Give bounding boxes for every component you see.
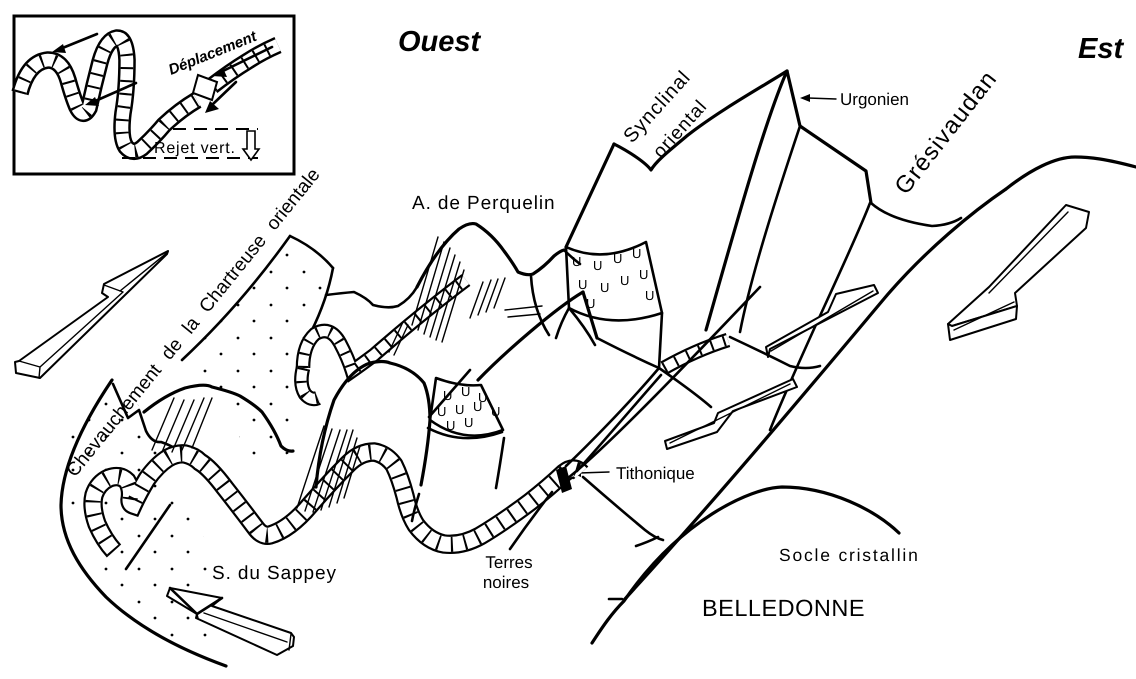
svg-text:noires: noires bbox=[483, 573, 529, 592]
svg-text:U: U bbox=[464, 415, 473, 430]
svg-text:U: U bbox=[437, 404, 446, 419]
svg-text:Rejet vert.: Rejet vert. bbox=[154, 140, 236, 157]
svg-text:U: U bbox=[613, 251, 622, 266]
svg-text:U: U bbox=[620, 273, 629, 288]
svg-text:Tithonique: Tithonique bbox=[616, 464, 695, 483]
svg-text:U: U bbox=[443, 388, 452, 403]
svg-text:U: U bbox=[632, 246, 641, 261]
svg-text:Est: Est bbox=[1078, 33, 1124, 65]
svg-text:A. de Perquelin: A. de Perquelin bbox=[412, 193, 555, 214]
svg-text:U: U bbox=[639, 267, 648, 282]
svg-text:U: U bbox=[491, 404, 500, 419]
svg-text:U: U bbox=[600, 280, 609, 295]
svg-text:U: U bbox=[446, 418, 455, 433]
svg-text:Ouest: Ouest bbox=[398, 26, 482, 58]
svg-text:S. du Sappey: S. du Sappey bbox=[212, 563, 337, 584]
svg-text:U: U bbox=[578, 277, 587, 292]
svg-text:U: U bbox=[586, 296, 595, 311]
svg-text:U: U bbox=[473, 399, 482, 414]
svg-text:U: U bbox=[593, 258, 602, 273]
svg-text:U: U bbox=[461, 384, 470, 399]
svg-text:Urgonien: Urgonien bbox=[840, 90, 909, 109]
svg-text:Terres: Terres bbox=[485, 553, 532, 572]
svg-text:U: U bbox=[455, 402, 464, 417]
svg-text:U: U bbox=[572, 254, 581, 269]
svg-text:BELLEDONNE: BELLEDONNE bbox=[702, 595, 865, 621]
svg-text:U: U bbox=[645, 288, 654, 303]
svg-text:Socle cristallin: Socle cristallin bbox=[779, 545, 920, 565]
